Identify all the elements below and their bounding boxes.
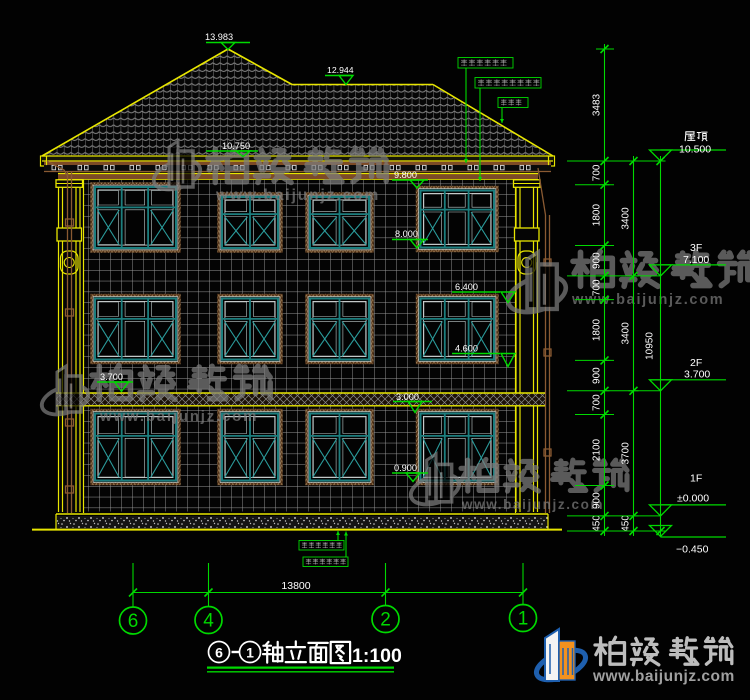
svg-text:1F: 1F bbox=[690, 473, 702, 485]
svg-text:0.900: 0.900 bbox=[394, 463, 417, 473]
svg-text:13800: 13800 bbox=[281, 580, 310, 592]
svg-text:1800: 1800 bbox=[592, 318, 603, 341]
svg-text:12.944: 12.944 bbox=[327, 65, 354, 75]
svg-text:10.500: 10.500 bbox=[679, 144, 711, 156]
svg-text:−0.450: −0.450 bbox=[676, 544, 709, 556]
svg-text:3F: 3F bbox=[690, 242, 702, 254]
svg-text:3.700: 3.700 bbox=[100, 372, 123, 382]
svg-text:www.baijunjz.com: www.baijunjz.com bbox=[592, 668, 735, 685]
svg-text:3400: 3400 bbox=[621, 207, 632, 230]
svg-text:10.750: 10.750 bbox=[222, 141, 250, 151]
svg-text:450: 450 bbox=[592, 515, 603, 532]
svg-text:9.800: 9.800 bbox=[394, 170, 417, 180]
svg-text:±0.000: ±0.000 bbox=[677, 493, 709, 505]
svg-text:900: 900 bbox=[592, 367, 603, 384]
svg-text:1:100: 1:100 bbox=[352, 645, 402, 667]
svg-text:2F: 2F bbox=[690, 357, 702, 369]
svg-text:6: 6 bbox=[215, 645, 223, 661]
svg-text:2: 2 bbox=[380, 610, 391, 631]
svg-text:13.983: 13.983 bbox=[205, 32, 233, 42]
svg-text:www.baijunjz.com: www.baijunjz.com bbox=[461, 497, 604, 512]
svg-text:1: 1 bbox=[246, 645, 254, 661]
svg-text:900: 900 bbox=[592, 252, 603, 269]
svg-text:3483: 3483 bbox=[592, 93, 603, 116]
svg-text:10950: 10950 bbox=[645, 332, 656, 360]
svg-text:3400: 3400 bbox=[621, 322, 632, 345]
svg-text:700: 700 bbox=[592, 279, 603, 296]
svg-text:3700: 3700 bbox=[621, 442, 632, 465]
svg-text:4: 4 bbox=[203, 611, 214, 632]
svg-text:www.baijunjz.com: www.baijunjz.com bbox=[99, 408, 258, 425]
svg-text:www.baijunjz.com: www.baijunjz.com bbox=[215, 187, 380, 204]
svg-text:6: 6 bbox=[128, 611, 139, 632]
svg-text:2100: 2100 bbox=[592, 438, 603, 461]
svg-text:7.100: 7.100 bbox=[683, 254, 709, 266]
svg-text:4.600: 4.600 bbox=[455, 344, 478, 354]
svg-text:900: 900 bbox=[592, 492, 603, 509]
svg-text:3.700: 3.700 bbox=[684, 369, 710, 381]
svg-text:3.000: 3.000 bbox=[396, 392, 419, 402]
svg-text:700: 700 bbox=[592, 164, 603, 181]
svg-text:8.000: 8.000 bbox=[395, 229, 418, 239]
svg-text:1: 1 bbox=[518, 609, 529, 630]
svg-text:1800: 1800 bbox=[592, 204, 603, 227]
svg-text:6.400: 6.400 bbox=[455, 282, 478, 292]
svg-text:700: 700 bbox=[592, 394, 603, 411]
svg-text:450: 450 bbox=[621, 515, 632, 532]
